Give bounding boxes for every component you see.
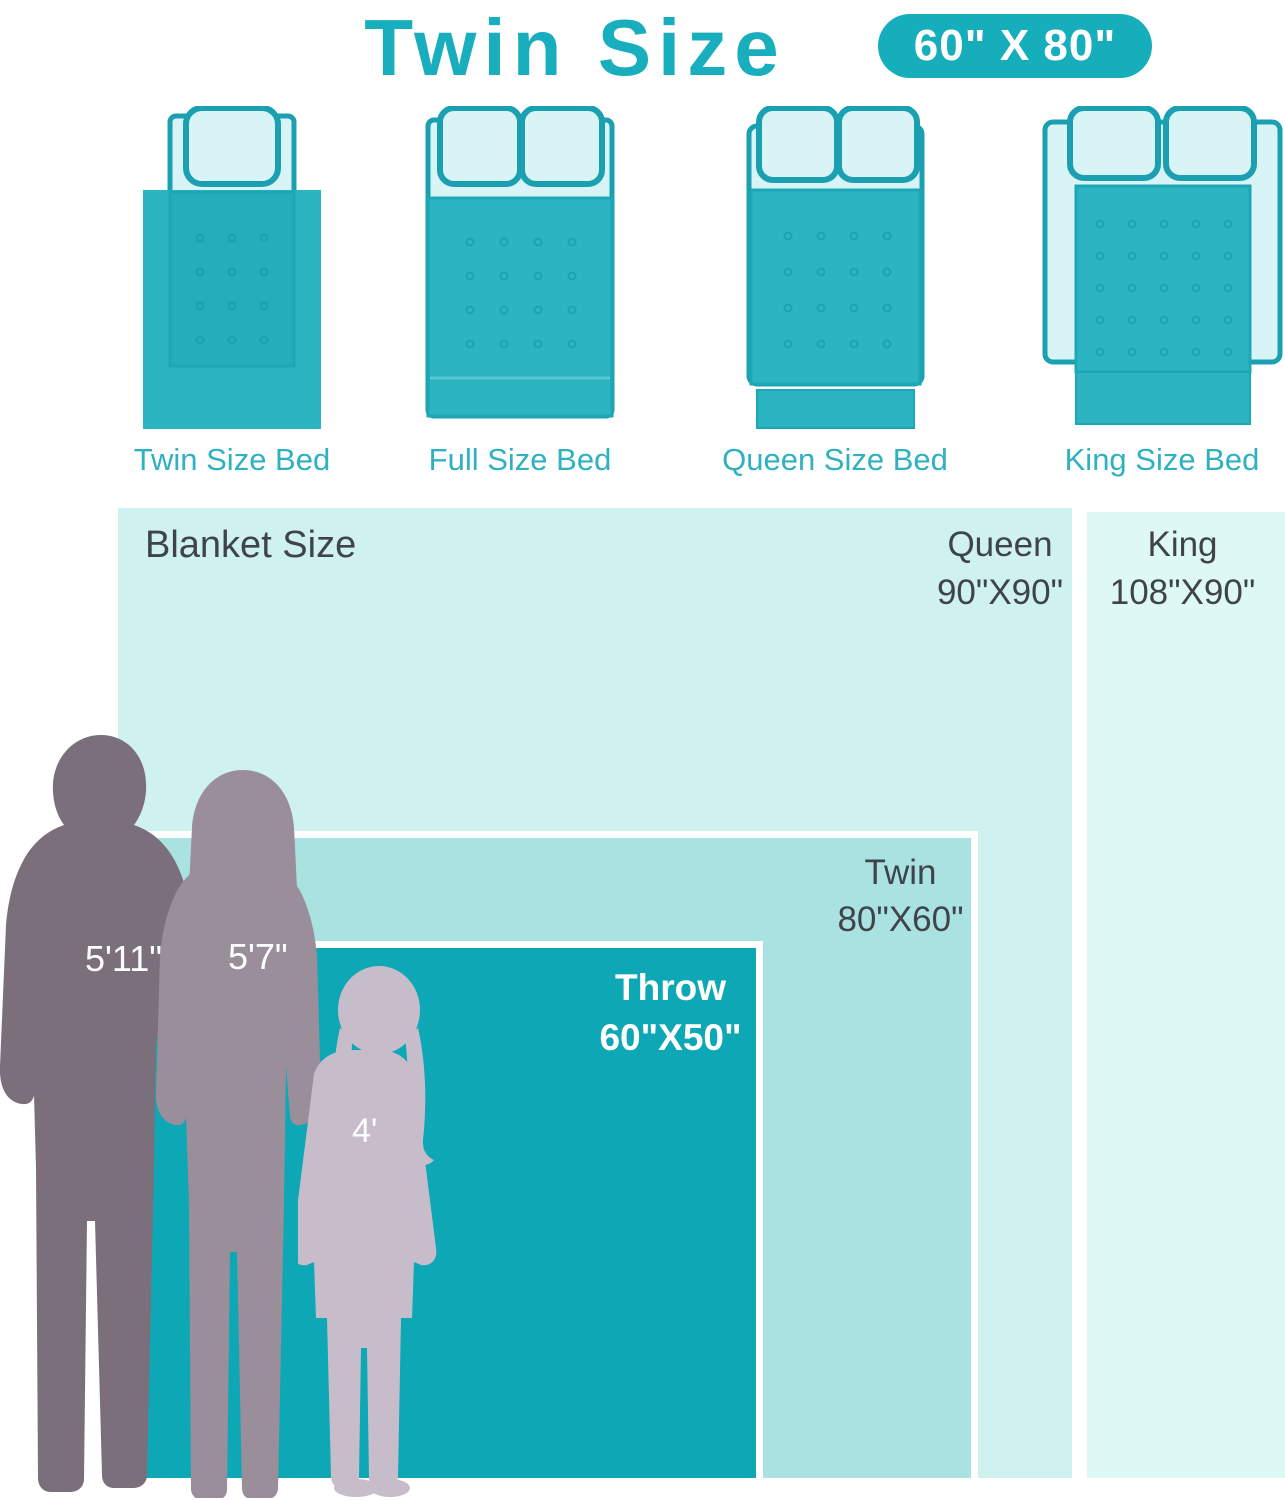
king-bed-icon [1040, 106, 1285, 430]
bed-label-twin: Twin Size Bed [82, 442, 382, 478]
blanket-size-infographic: Twin Size 60" X 80" [0, 0, 1285, 1500]
queen-bed-icon [733, 106, 938, 430]
bed-label-king: King Size Bed [1012, 442, 1285, 478]
twin-size-label: Twin 80"X60" [828, 849, 973, 943]
girl-silhouette [298, 958, 460, 1498]
queen-size-name: Queen [930, 521, 1070, 569]
bed-label-queen: Queen Size Bed [685, 442, 985, 478]
bed-label-full: Full Size Bed [370, 442, 670, 478]
size-badge: 60" X 80" [878, 14, 1152, 78]
king-size-label: King 108"X90" [1095, 521, 1270, 617]
king-size-name: King [1095, 521, 1270, 569]
panel-title: Blanket Size [145, 524, 356, 567]
queen-size-dimensions: 90"X90" [930, 569, 1070, 617]
king-size-area [1087, 512, 1285, 1478]
girl-height-label: 4' [352, 1112, 377, 1151]
twin-bed-icon [142, 106, 322, 430]
woman-height-label: 5'7" [228, 936, 288, 978]
twin-size-dimensions: 80"X60" [828, 896, 973, 943]
full-bed-icon [420, 106, 620, 430]
throw-size-dimensions: 60"X50" [593, 1013, 748, 1063]
king-size-dimensions: 108"X90" [1095, 569, 1270, 617]
man-height-label: 5'11" [85, 938, 162, 980]
throw-size-label: Throw 60"X50" [593, 963, 748, 1063]
page-title: Twin Size [330, 0, 820, 95]
queen-size-label: Queen 90"X90" [930, 521, 1070, 617]
throw-size-name: Throw [593, 963, 748, 1013]
twin-size-name: Twin [828, 849, 973, 896]
